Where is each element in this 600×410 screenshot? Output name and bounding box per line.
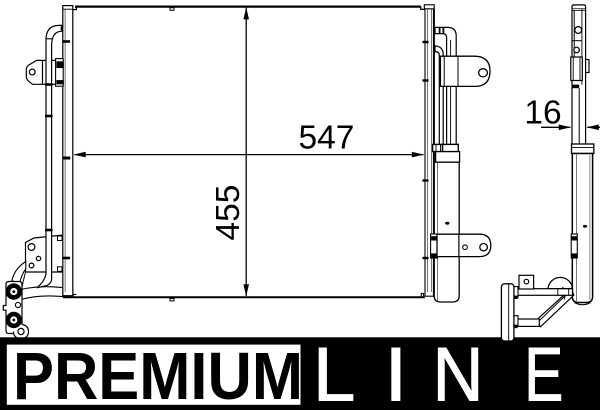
svg-text:455: 455: [210, 185, 247, 241]
svg-text:E: E: [524, 333, 563, 410]
svg-text:PREMIUM: PREMIUM: [13, 339, 303, 410]
svg-text:I: I: [384, 332, 407, 410]
svg-text:N: N: [433, 332, 484, 410]
svg-text:L: L: [313, 333, 355, 410]
svg-text:16: 16: [524, 95, 561, 132]
svg-text:547: 547: [299, 120, 355, 157]
